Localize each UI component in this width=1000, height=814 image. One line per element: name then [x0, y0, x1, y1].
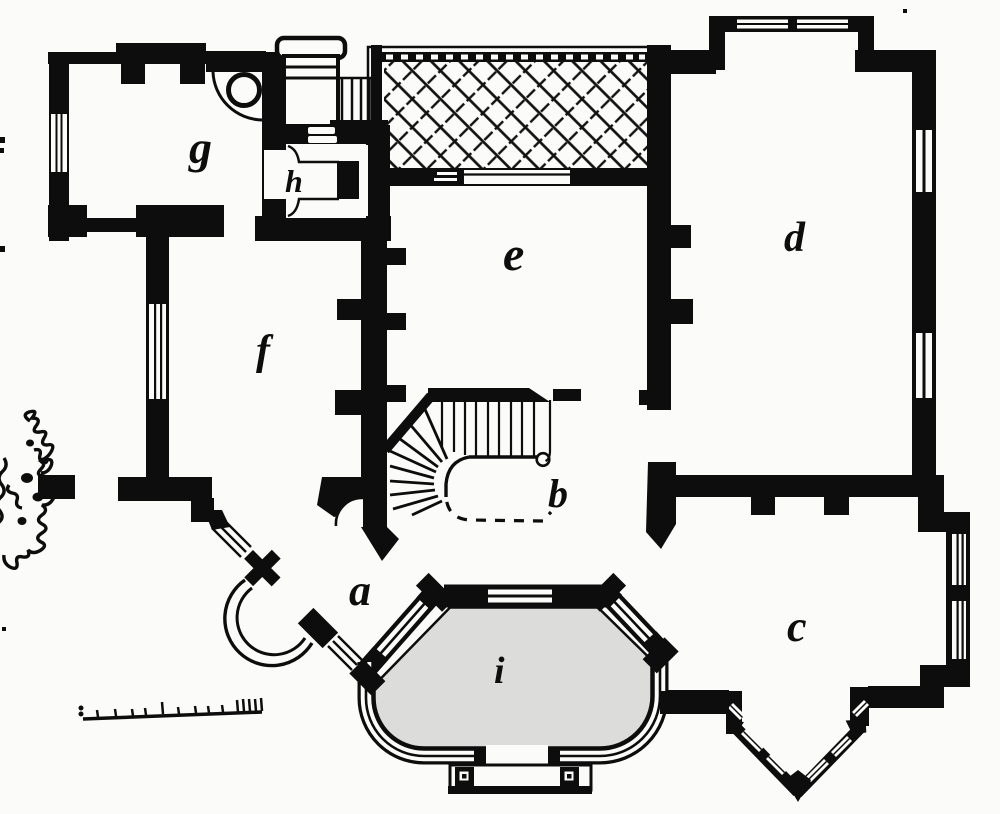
svg-text:h: h: [285, 163, 303, 199]
svg-text:a: a: [349, 566, 371, 615]
svg-text:b: b: [548, 471, 568, 516]
svg-text:d: d: [784, 215, 806, 261]
svg-text:i: i: [494, 650, 505, 692]
svg-text:e: e: [503, 228, 524, 281]
svg-text:c: c: [787, 602, 807, 651]
svg-text:g: g: [188, 122, 212, 173]
